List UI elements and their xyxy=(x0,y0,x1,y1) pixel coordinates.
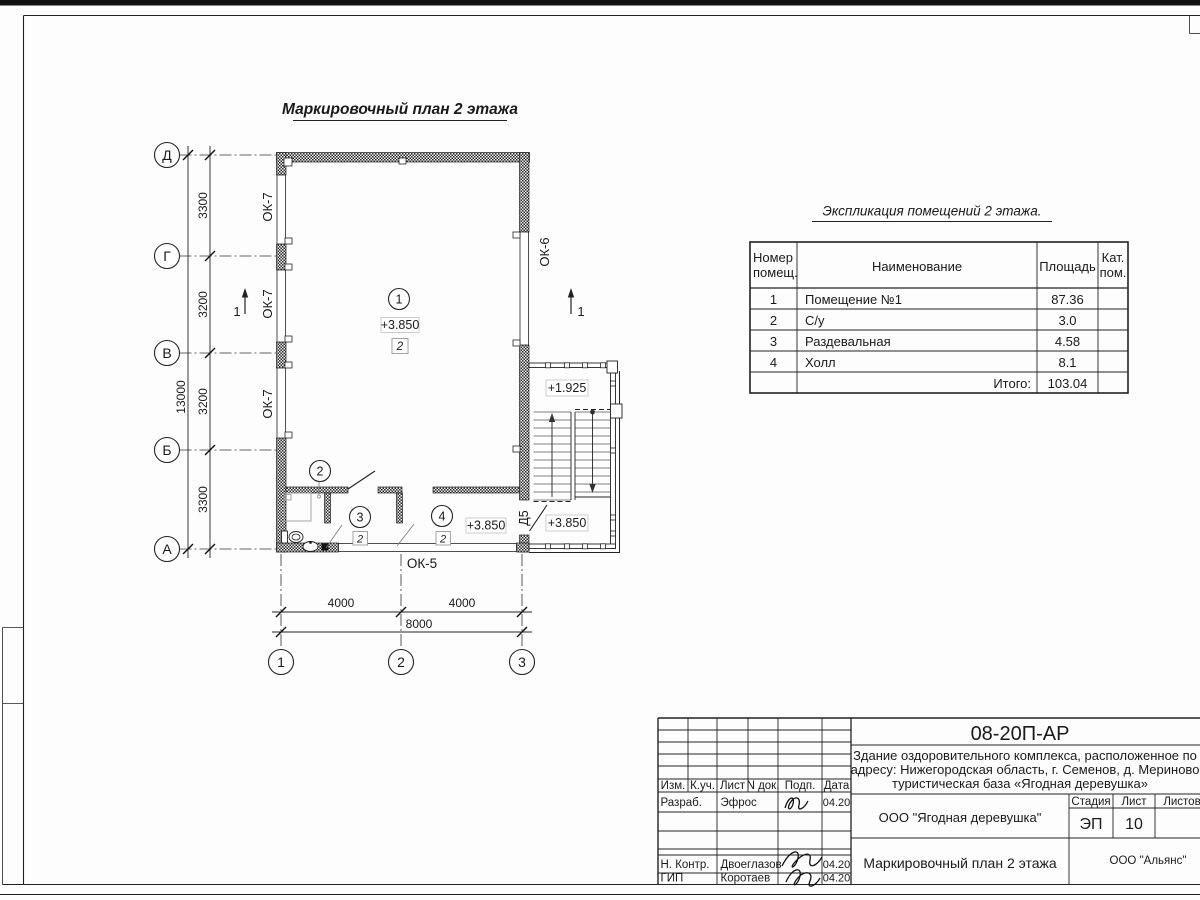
window-ok7-1 xyxy=(277,175,286,244)
cell-area: 87.36 xyxy=(1051,292,1084,307)
org-name: ООО "Альянс" xyxy=(1110,855,1187,867)
elevation-landing: +1.925 xyxy=(548,381,587,395)
dim-text: 3300 xyxy=(196,486,210,513)
room-number: 4 xyxy=(439,510,446,524)
axis-label: 3 xyxy=(518,654,526,670)
plan-title-text: Маркировочный план 2 этажа xyxy=(282,101,518,118)
window-ok6 xyxy=(520,232,529,345)
toilet-icon xyxy=(282,531,288,543)
col-podp: Подп. xyxy=(785,780,816,792)
col-header-num: помещ. xyxy=(753,265,798,280)
table-row: 3 Раздевальная 4.58 xyxy=(770,334,1080,349)
cell-name: Раздевальная xyxy=(805,334,891,349)
axis-label: Д xyxy=(162,147,172,163)
shower-tray xyxy=(284,493,311,521)
explication-table: Экспликация помещений 2 этажа. Номер пом… xyxy=(750,204,1128,394)
dim-text: 3300 xyxy=(196,192,210,219)
window-ok7-3 xyxy=(277,368,286,438)
elevation-stair-lower: +3.850 xyxy=(548,516,587,530)
col-header-num: Номер xyxy=(753,250,793,265)
explication-title: Экспликация помещений 2 этажа. xyxy=(823,204,1042,219)
stair-arrow-down xyxy=(589,410,595,493)
col-ndok: N док. xyxy=(747,780,780,792)
dim-total-text: 13000 xyxy=(174,380,188,414)
axis-label: Б xyxy=(162,442,171,458)
cell-num: 2 xyxy=(770,313,777,328)
row-gip-date: 04.20 xyxy=(823,873,851,885)
window-label-ok7: ОК-7 xyxy=(260,389,275,418)
plan-title: Маркировочный план 2 этажа xyxy=(282,101,518,121)
cell-name: Помещение №1 xyxy=(805,292,902,307)
door-label-d5: Д5 xyxy=(517,510,531,525)
col-header-area: Площадь xyxy=(1039,259,1096,274)
sheets-label: Листов xyxy=(1163,796,1200,808)
row-razrab-label: Разраб. xyxy=(661,797,702,809)
table-total-row: Итого: 103.04 xyxy=(993,376,1087,391)
row-razrab-name: Эфрос xyxy=(721,797,758,809)
axis-grid-left: Д Г В Б А 3300 3200 3200 3300 13000 xyxy=(155,143,277,562)
col-header-name: Наименование xyxy=(872,259,962,274)
project-line1: Здание оздоровительного комплекса, распо… xyxy=(853,748,1197,763)
cell-num: 1 xyxy=(770,292,777,307)
title-block: Изм. К.уч. Лист N док. Подп. Дата Разраб… xyxy=(658,718,1200,886)
drawing-canvas: Маркировочный план 2 этажа Д Г В Б А 330… xyxy=(0,0,1200,900)
row-nkontr-date: 04.20 xyxy=(823,859,851,871)
col-list: Лист xyxy=(720,780,746,792)
room-labels: 1 +3.850 2 2 3 2 4 2 +3.850 xyxy=(310,289,507,546)
project-line3: туристическая база «Ягодная деревушка» xyxy=(892,776,1148,791)
dim-text: 3200 xyxy=(196,388,210,415)
section-mark-label: 1 xyxy=(233,304,240,319)
signature-gip xyxy=(786,870,820,886)
project-line2: адресу: Нижегородская область, г. Семено… xyxy=(851,762,1200,777)
window-label-ok5: ОК-5 xyxy=(407,556,437,571)
sheet-value: 10 xyxy=(1125,816,1143,833)
finish-mark: 2 xyxy=(356,534,363,546)
axis-label: А xyxy=(162,541,172,557)
col-izm: Изм. xyxy=(661,780,686,792)
row-nkontr-name: Двоеглазов xyxy=(721,859,782,871)
axis-label: В xyxy=(162,345,171,361)
customer-name: ООО "Ягодная деревушка" xyxy=(879,810,1042,825)
axis-label: 2 xyxy=(397,654,405,670)
col-data: Дата xyxy=(824,780,850,792)
cell-num: 3 xyxy=(770,334,777,349)
total-label: Итого: xyxy=(993,376,1031,391)
dim-text: 3200 xyxy=(196,291,210,318)
cell-name: Холл xyxy=(805,355,836,370)
cell-area: 8.1 xyxy=(1058,355,1076,370)
section-mark-label: 1 xyxy=(577,304,584,319)
stair-block: +1.925 +3.850 xyxy=(529,361,622,553)
cell-name: С/у xyxy=(805,313,825,328)
room-number: 1 xyxy=(396,293,403,307)
elevation-hall: +3.850 xyxy=(467,519,506,533)
opening-labels: ОК-7 ОК-7 ОК-7 ОК-6 Д5 ОК-5 xyxy=(260,192,552,571)
dim-text: 4000 xyxy=(449,596,476,610)
room-number: 2 xyxy=(317,465,324,479)
axis-label: Г xyxy=(163,248,171,264)
dim-text: 4000 xyxy=(328,596,355,610)
window-label-ok7: ОК-7 xyxy=(260,289,275,318)
elevation-room1: +3.850 xyxy=(381,318,420,332)
stage-value: ЭП xyxy=(1080,816,1103,833)
col-kuch: К.уч. xyxy=(690,780,715,792)
col-header-cat: пом. xyxy=(1100,265,1127,280)
door-leaf xyxy=(348,471,375,489)
dim-total-text: 8000 xyxy=(406,617,433,631)
sheet-label: Лист xyxy=(1122,796,1148,808)
signature-nkontr xyxy=(782,852,822,867)
col-header-cat: Кат. xyxy=(1102,250,1125,265)
section-arrow-icon xyxy=(568,288,574,298)
stage-label: Стадия xyxy=(1071,796,1110,808)
document-code: 08-20П-АР xyxy=(971,723,1070,745)
row-nkontr-label: Н. Контр. xyxy=(661,859,710,871)
cell-area: 4.58 xyxy=(1055,334,1080,349)
room-number: 3 xyxy=(357,511,364,525)
row-gip-label: ГИП xyxy=(661,873,684,885)
window-ok7-2 xyxy=(277,270,286,342)
doc-title: Маркировочный план 2 этажа xyxy=(863,855,1057,871)
cell-area: 3.0 xyxy=(1058,313,1076,328)
table-row: 2 С/у 3.0 xyxy=(770,313,1077,328)
window-label-ok6: ОК-6 xyxy=(537,237,552,266)
axis-grid-bottom: 1 2 3 4000 4000 8000 xyxy=(269,554,535,675)
axis-label: 1 xyxy=(277,654,285,670)
table-row: 4 Холл 8.1 xyxy=(770,355,1077,370)
row-razrab-date: 04.20 xyxy=(823,797,851,809)
window-label-ok7: ОК-7 xyxy=(260,192,275,221)
finish-mark: 2 xyxy=(439,534,446,546)
signature-razrab xyxy=(785,798,808,809)
total-value: 103.04 xyxy=(1048,376,1088,391)
cell-num: 4 xyxy=(770,355,777,370)
finish-mark: 2 xyxy=(396,341,404,353)
row-gip-name: Коротаев xyxy=(721,873,771,885)
door-leaf-d5 xyxy=(530,505,548,531)
drawing-sheet: Маркировочный план 2 этажа Д Г В Б А 330… xyxy=(0,0,1200,900)
section-arrow-icon xyxy=(242,288,248,298)
